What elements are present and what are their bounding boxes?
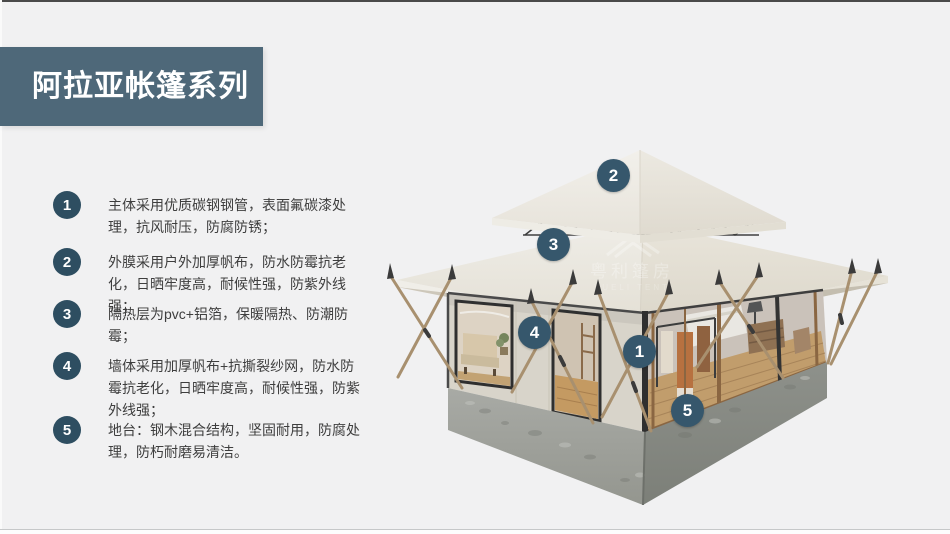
feature-item-4: 4 墙体采用加厚帆布+抗撕裂纱网，防水防霉抗老化，日晒牢度高，耐候性强，防紫外线… <box>53 352 366 421</box>
feature-1-badge: 1 <box>53 191 81 219</box>
page-title: 阿拉亚帐篷系列 <box>0 47 263 126</box>
feature-1-text: 主体采用优质碳钢钢管，表面氟碳漆处理，抗风耐压，防腐防锈； <box>108 194 366 238</box>
bottom-edge-strip <box>0 529 950 534</box>
feature-4-badge: 4 <box>53 352 81 380</box>
tent-callout-2: 2 <box>597 159 630 192</box>
left-window <box>456 301 512 388</box>
watermark-cn-text: 粤利篷房 <box>590 262 674 281</box>
feature-item-3: 3 隔热层为pvc+铝箔，保暖隔热、防潮防霉； <box>53 300 366 347</box>
tent-illustration: 粤利篷房 YUELI TENT <box>385 135 950 534</box>
feature-2-badge: 2 <box>53 248 81 276</box>
feature-4-text: 墙体采用加厚帆布+抗撕裂纱网，防水防霉抗老化，日晒牢度高，耐候性强，防紫外线强； <box>108 355 366 421</box>
feature-5-badge: 5 <box>53 416 81 444</box>
feature-item-5: 5 地台：钢木混合结构，坚固耐用，防腐处理，防朽耐磨易清洁。 <box>53 416 366 463</box>
tent-diagram: 粤利篷房 YUELI TENT <box>385 135 950 534</box>
top-edge-strip <box>0 0 950 2</box>
slide: 阿拉亚帐篷系列 1 主体采用优质碳钢钢管，表面氟碳漆处理，抗风耐压，防腐防锈； … <box>0 0 950 534</box>
feature-item-1: 1 主体采用优质碳钢钢管，表面氟碳漆处理，抗风耐压，防腐防锈； <box>53 191 366 238</box>
tent-callout-4: 4 <box>518 316 551 349</box>
watermark-en-text: YUELI TENT <box>594 283 670 292</box>
cap-roof <box>492 150 786 243</box>
tent-callout-1: 1 <box>623 335 656 368</box>
tent-callout-5: 5 <box>671 394 704 427</box>
feature-5-text: 地台：钢木混合结构，坚固耐用，防腐处理，防朽耐磨易清洁。 <box>108 419 366 463</box>
feature-3-text: 隔热层为pvc+铝箔，保暖隔热、防潮防霉； <box>108 303 366 347</box>
feature-3-badge: 3 <box>53 300 81 328</box>
left-door <box>553 310 600 421</box>
title-banner: 阿拉亚帐篷系列 <box>0 47 263 126</box>
tent-callout-3: 3 <box>537 228 570 261</box>
